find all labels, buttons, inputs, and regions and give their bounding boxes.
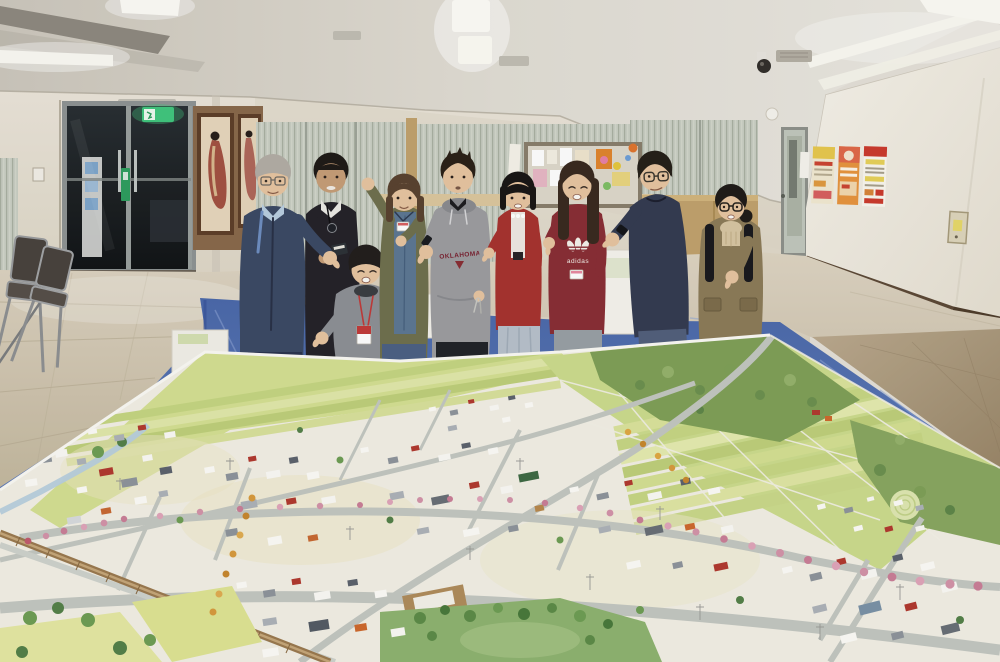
vignette [0,0,1000,662]
photo-town-model-group: OKLAHOMA [0,0,1000,662]
